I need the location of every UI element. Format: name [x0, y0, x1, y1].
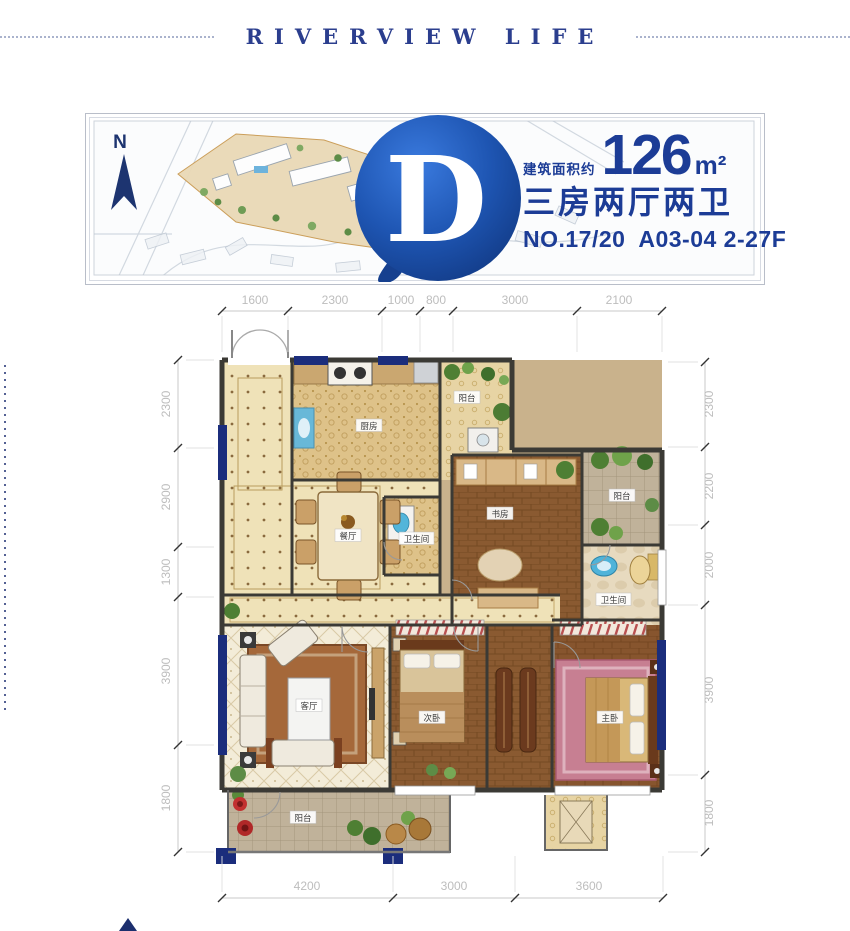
- label-bath-master: 卫生间: [596, 593, 631, 606]
- unit-number-row: NO.17/20 A03-04 2-27F: [523, 226, 763, 253]
- svg-text:3900: 3900: [159, 657, 173, 684]
- svg-text:1800: 1800: [159, 784, 173, 811]
- label-living: 客厅: [296, 699, 322, 712]
- label-balcony-bottom: 阳台: [290, 811, 316, 824]
- svg-text:3000: 3000: [502, 293, 529, 307]
- d-logo: D: [355, 115, 521, 282]
- label-bedroom-master: 主卧: [597, 711, 623, 724]
- header-rule-right: [636, 36, 850, 38]
- layout-text: 三房两厅两卫: [523, 184, 763, 221]
- svg-text:2100: 2100: [606, 293, 633, 307]
- compass-label: N: [113, 132, 127, 153]
- platform-fixtures: [560, 801, 592, 843]
- svg-text:卫生间: 卫生间: [404, 534, 430, 544]
- svg-text:厨房: 厨房: [360, 421, 377, 431]
- bottom-compass-arrow-icon: [119, 918, 137, 931]
- svg-text:1300: 1300: [159, 558, 173, 585]
- toilet-icon: [630, 556, 650, 584]
- label-bath: 卫生间: [399, 532, 434, 545]
- area-label: 建筑面积约: [523, 158, 596, 178]
- area-row: 建筑面积约 126 m²: [523, 128, 763, 182]
- page-header: RIVERVIEW LIFE: [0, 24, 850, 49]
- area-value: 126: [602, 128, 691, 182]
- svg-text:3600: 3600: [576, 879, 603, 893]
- banner-text: 建筑面积约 126 m² 三房两厅两卫 NO.17/20 A03-04 2-27…: [523, 128, 763, 253]
- svg-text:2300: 2300: [322, 293, 349, 307]
- d-logo-letter: D: [385, 130, 487, 269]
- svg-text:次卧: 次卧: [423, 713, 441, 723]
- floor-plan: 1600 2300 1000 800 3000 2100 2300 2900 1…: [0, 285, 850, 931]
- label-dining: 餐厅: [335, 529, 361, 542]
- svg-text:1000: 1000: [388, 293, 415, 307]
- svg-text:卫生间: 卫生间: [601, 595, 627, 605]
- label-bedroom-second: 次卧: [419, 711, 445, 724]
- svg-text:800: 800: [426, 293, 446, 307]
- dim-right: 2300 2200 2000 3900 1800: [702, 390, 716, 826]
- label-balcony-top: 阳台: [454, 391, 480, 404]
- entry-door: [228, 330, 290, 365]
- bed-headboard-icon: [400, 640, 464, 650]
- svg-text:书房: 书房: [491, 509, 508, 519]
- svg-text:客厅: 客厅: [300, 701, 318, 711]
- sofa-icon: [240, 655, 266, 747]
- svg-text:3900: 3900: [702, 676, 716, 703]
- info-banner: N D 建筑面积约 126 m² 三房两厅两卫 NO.17/20 A03-04 …: [85, 113, 765, 285]
- hall-plant: [224, 603, 240, 619]
- svg-text:2900: 2900: [159, 483, 173, 510]
- label-study: 书房: [487, 507, 513, 520]
- svg-text:2300: 2300: [159, 390, 173, 417]
- bay-window-footer: [216, 848, 236, 864]
- svg-text:阳台: 阳台: [613, 491, 630, 501]
- dim-top: 1600 2300 1000 800 3000 2100: [242, 293, 633, 307]
- svg-text:4200: 4200: [294, 879, 321, 893]
- svg-text:餐厅: 餐厅: [339, 531, 357, 541]
- svg-text:2300: 2300: [702, 390, 716, 417]
- unit-code: A03-04 2-27F: [638, 226, 786, 252]
- svg-text:3000: 3000: [441, 879, 468, 893]
- dim-left: 2300 2900 1300 3900 1800: [159, 390, 173, 811]
- svg-text:2200: 2200: [702, 472, 716, 499]
- header-rule-left: [0, 36, 214, 38]
- svg-text:2000: 2000: [702, 551, 716, 578]
- label-kitchen: 厨房: [356, 419, 382, 432]
- page-title: RIVERVIEW LIFE: [246, 24, 605, 49]
- svg-text:1800: 1800: [702, 799, 716, 826]
- dim-bottom: 4200 3000 3600: [294, 879, 603, 893]
- svg-text:1600: 1600: [242, 293, 269, 307]
- area-unit: m²: [695, 150, 727, 181]
- bed-headboard-icon: [648, 676, 658, 764]
- svg-text:主卧: 主卧: [601, 713, 619, 723]
- svg-text:阳台: 阳台: [294, 813, 311, 823]
- label-balcony-right: 阳台: [609, 489, 635, 502]
- unit-number: NO.17/20: [523, 226, 625, 252]
- svg-text:阳台: 阳台: [458, 393, 475, 403]
